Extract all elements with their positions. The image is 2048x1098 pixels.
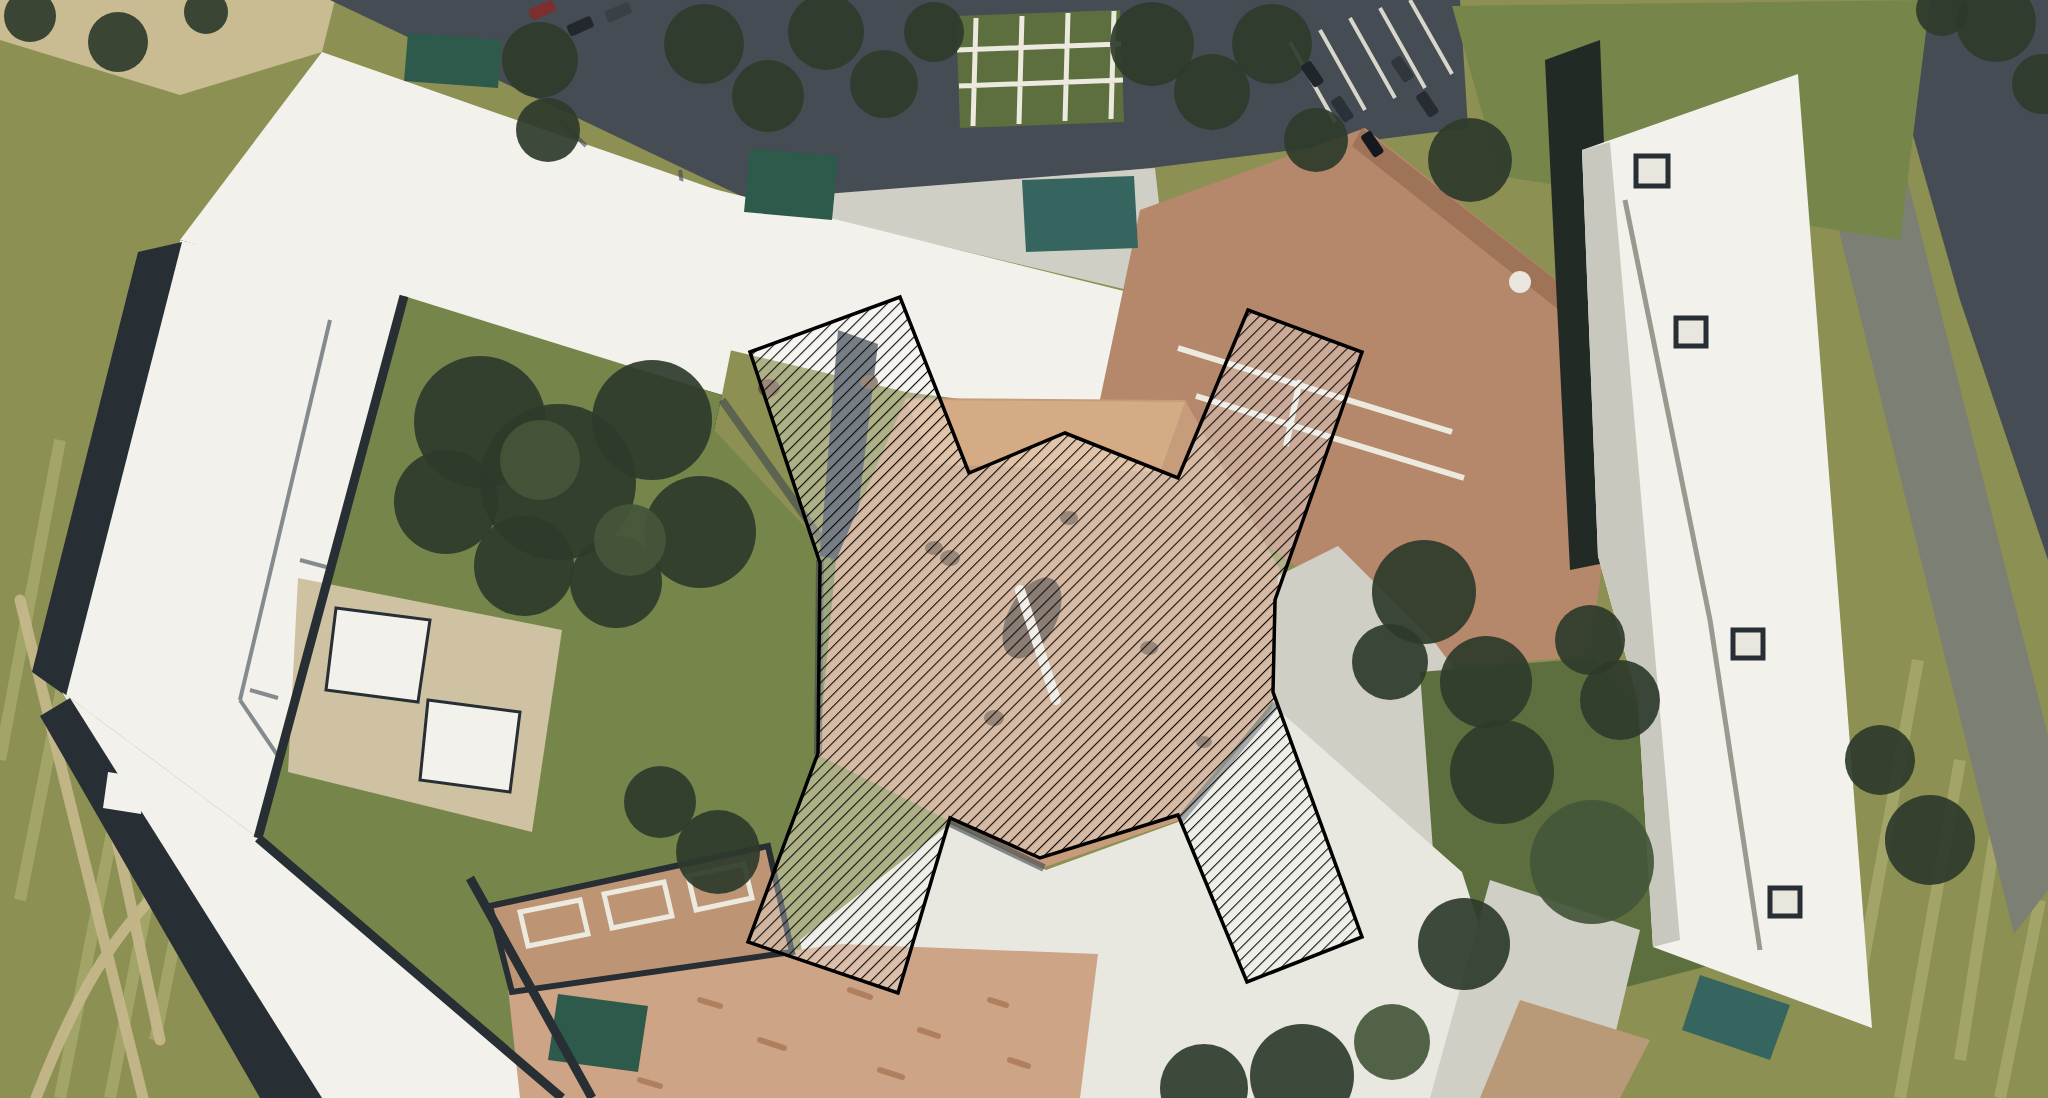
tree-canopy (1885, 795, 1975, 885)
grid-quad-lawn (956, 10, 1124, 128)
tree-canopy (904, 2, 964, 62)
tree-canopy (624, 766, 696, 838)
tree-canopy (1428, 118, 1512, 202)
tree-canopy (592, 360, 712, 480)
tree-canopy (1450, 720, 1554, 824)
tree-canopy (850, 50, 918, 118)
tree-canopy (1440, 636, 1532, 728)
aerial-map-canvas (0, 0, 2048, 1098)
tree-canopy (732, 60, 804, 132)
tree-canopy (1555, 605, 1625, 675)
tree-canopy (394, 450, 498, 554)
field-shed (103, 772, 146, 814)
tree-canopy (1845, 725, 1915, 795)
brown-roof-dome (1509, 271, 1531, 293)
north-green-canopy (744, 148, 838, 220)
courtyard-shed-a (326, 608, 430, 702)
tree-canopy (88, 12, 148, 72)
tree-canopy (1530, 800, 1654, 924)
tree-canopy (500, 420, 580, 500)
courtyard-shed-b (420, 700, 520, 792)
tree-canopy (502, 22, 578, 98)
bus-shelter-canopy (404, 33, 502, 88)
tree-canopy (664, 4, 744, 84)
tree-canopy (594, 504, 666, 576)
teal-pool-structure (1022, 176, 1138, 252)
tree-canopy (1354, 1004, 1430, 1080)
south-green-canopy (548, 994, 648, 1072)
tree-canopy (1232, 4, 1312, 84)
satellite-screenshot (0, 0, 2048, 1098)
tree-canopy (1352, 624, 1428, 700)
tree-canopy (516, 98, 580, 162)
tree-canopy (1418, 898, 1510, 990)
tree-canopy (1284, 108, 1348, 172)
